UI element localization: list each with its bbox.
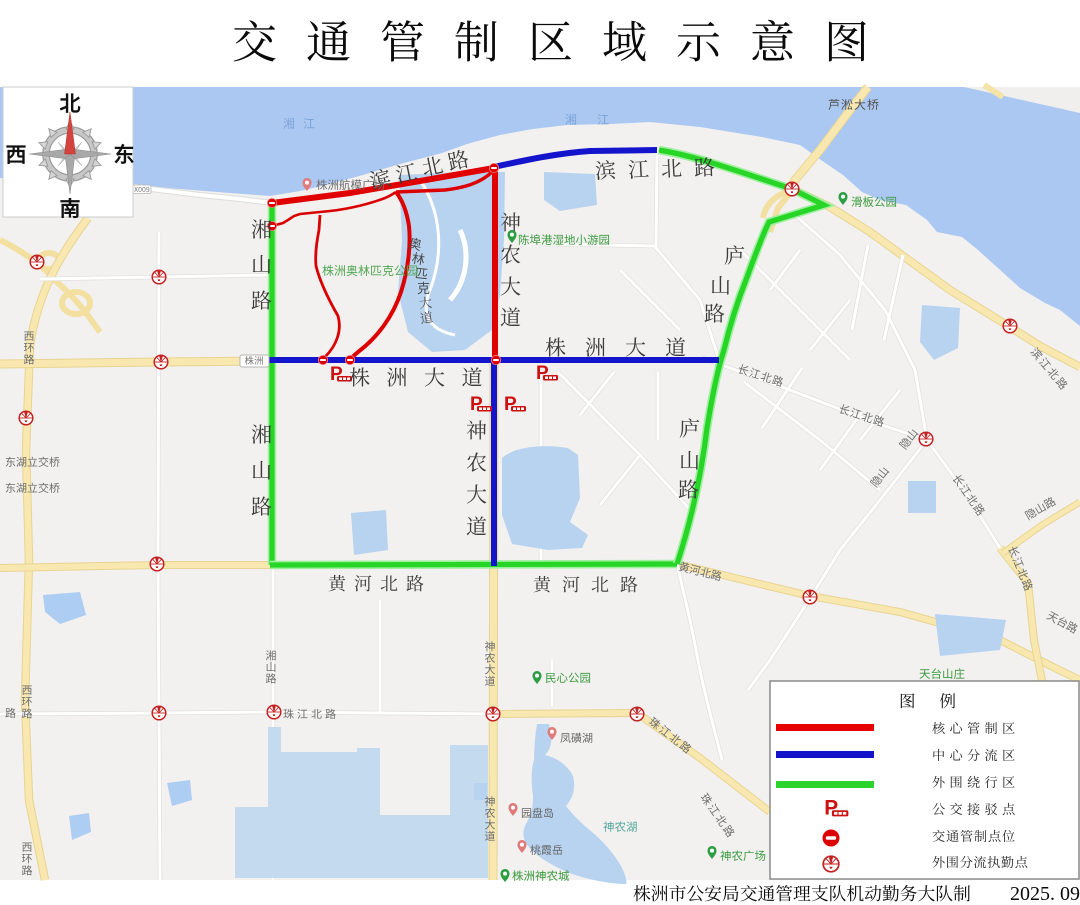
svg-text:神农广场: 神农广场 [720,848,766,864]
svg-text:陈埠港湿地小游园: 陈埠港湿地小游园 [518,232,610,248]
svg-text:交通管制区域示意图: 交通管制区域示意图 [232,6,898,71]
svg-text:株洲大道: 株洲大道 [545,332,705,362]
svg-text:中心分流区: 中心分流区 [932,745,1019,764]
svg-text:江: 江 [627,153,650,184]
svg-text:凤磺湖: 凤磺湖 [560,730,593,746]
svg-text:西环路: 西环路 [21,330,37,365]
svg-text:外围分流执勤点: 外围分流执勤点 [932,852,1029,871]
svg-text:滨: 滨 [594,154,617,185]
svg-text:庐: 庐 [679,413,700,443]
svg-text:路: 路 [251,491,272,521]
svg-text:交通管制点位: 交通管制点位 [932,826,1016,845]
svg-text:路: 路 [704,298,725,328]
svg-text:东湖立交桥: 东湖立交桥 [5,480,60,496]
svg-text:桃霞岳: 桃霞岳 [530,842,563,858]
svg-text:图例: 图例 [899,688,980,712]
svg-text:庐: 庐 [724,240,745,270]
svg-text:2025. 09: 2025. 09 [1010,883,1080,905]
svg-text:西环路: 西环路 [19,841,35,876]
svg-text:路: 路 [693,151,716,182]
svg-text:株洲大道: 株洲大道 [349,362,499,392]
svg-text:南: 南 [60,193,81,223]
svg-text:神农大道: 神农大道 [482,640,498,686]
svg-text:园盘岛: 园盘岛 [521,805,554,821]
svg-text:湘江: 湘江 [283,115,323,132]
svg-text:外围绕行区: 外围绕行区 [932,772,1019,791]
svg-text:北: 北 [60,88,81,118]
svg-text:神: 神 [466,415,487,445]
svg-text:株洲市公安局交通管理支队机动勤务大队制: 株洲市公安局交通管理支队机动勤务大队制 [633,881,971,905]
svg-text:西: 西 [6,139,27,169]
svg-text:神农大道: 神农大道 [482,795,498,841]
svg-text:湘山路: 湘山路 [263,649,279,684]
svg-text:东: 东 [114,139,135,169]
svg-text:山: 山 [679,445,700,475]
svg-text:北: 北 [660,152,683,183]
svg-text:神农湖: 神农湖 [603,819,638,835]
svg-text:大: 大 [466,479,487,509]
svg-text:X009: X009 [134,185,150,195]
svg-text:株洲神农城: 株洲神农城 [512,868,570,884]
svg-text:道: 道 [466,511,487,541]
svg-text:山: 山 [710,270,731,300]
svg-text:芦淞大桥: 芦淞大桥 [828,96,880,113]
svg-text:西环路: 西环路 [19,684,35,719]
svg-text:核心管制区: 核心管制区 [932,718,1019,737]
svg-text:滑板公园: 滑板公园 [851,194,897,210]
svg-text:湘: 湘 [251,214,272,244]
svg-text:株洲奥林匹克公园: 株洲奥林匹克公园 [322,262,418,279]
svg-text:黄河北路: 黄河北路 [533,571,649,597]
svg-text:东湖立交桥: 东湖立交桥 [5,454,60,470]
svg-text:道: 道 [500,302,521,332]
svg-text:路: 路 [251,285,272,315]
svg-text:山: 山 [251,455,272,485]
svg-text:珠江北路: 珠江北路 [283,706,339,722]
svg-text:农: 农 [466,447,487,477]
svg-text:湘江: 湘江 [565,111,629,128]
svg-text:路: 路 [5,705,16,721]
svg-text:大: 大 [500,271,521,301]
svg-text:株洲: 株洲 [244,353,263,367]
svg-text:株洲航模广场: 株洲航模广场 [316,177,385,193]
svg-text:公交接驳点: 公交接驳点 [932,799,1019,818]
svg-text:黄河北路: 黄河北路 [328,570,432,596]
svg-text:民心公园: 民心公园 [545,670,591,686]
svg-text:路: 路 [678,474,699,504]
svg-text:天台山庄: 天台山庄 [919,666,965,682]
svg-text:山: 山 [251,249,272,279]
svg-text:湘: 湘 [251,419,272,449]
